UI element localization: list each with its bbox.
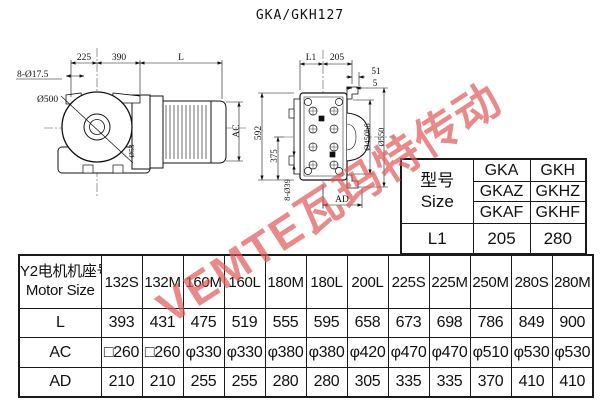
value-cell: 431 — [142, 309, 183, 338]
dim-5: 5 — [373, 78, 378, 88]
dim-L: L — [178, 53, 184, 63]
row-label-L: L — [19, 309, 101, 338]
motor-size-col: 180M — [265, 255, 306, 309]
row-label-AC: AC — [19, 338, 101, 368]
l1-value: 280 — [530, 224, 586, 255]
value-cell: 519 — [224, 309, 265, 338]
dim-225: 225 — [77, 53, 92, 63]
value-cell: 210 — [142, 368, 183, 398]
value-cell: φ330 — [224, 338, 265, 368]
dim-d500: Ø500 — [37, 95, 58, 105]
dim-ac: AC — [232, 124, 242, 137]
value-cell: φ380 — [306, 338, 347, 368]
motor-size-col: 160L — [224, 255, 265, 309]
motor-outline — [150, 96, 226, 168]
motor-size-col: 180L — [306, 255, 347, 309]
dim-d53: Ø53 — [127, 144, 136, 157]
motor-size-col: 225M — [429, 255, 470, 309]
value-cell: 370 — [470, 368, 511, 398]
value-cell: 673 — [388, 309, 429, 338]
dim-ad: AD — [335, 195, 349, 205]
motor-table-header: Y2电机机座号 Motor Size — [19, 255, 101, 309]
value-cell: 255 — [224, 368, 265, 398]
motor-table-header-row: Y2电机机座号 Motor Size 132S 132M 160M 160L 1… — [19, 255, 593, 309]
table-row-AC: AC □260 □260 φ330 φ330 φ380 φ380 φ420 φ4… — [19, 338, 593, 368]
model-cell: GKH — [530, 159, 586, 182]
dim-205: 205 — [330, 53, 345, 63]
value-cell: φ530 — [511, 338, 552, 368]
value-cell: 595 — [306, 309, 347, 338]
motor-size-col: 250M — [470, 255, 511, 309]
motor-size-col: 280S — [511, 255, 552, 309]
motor-size-col: 132M — [142, 255, 183, 309]
value-cell: 305 — [347, 368, 388, 398]
side-top-dimension — [300, 60, 365, 90]
dim-bolt-side: 8-Ø39 — [282, 179, 292, 201]
l1-row-label: L1 — [401, 224, 473, 255]
value-cell: □260 — [101, 338, 142, 368]
motor-size-col: 160M — [183, 255, 224, 309]
table-row-L: L 393 431 475 519 555 595 658 673 698 78… — [19, 309, 593, 338]
size-table: 型号 Size GKA GKH GKAZ GKHZ GKAF GKHF L1 2… — [400, 158, 587, 255]
value-cell: □260 — [142, 338, 183, 368]
model-cell: GKAZ — [473, 182, 530, 202]
value-cell: φ380 — [265, 338, 306, 368]
value-cell: 410 — [511, 368, 552, 398]
model-cell: GKHF — [530, 202, 586, 224]
size-table-header-en: Size — [402, 192, 473, 212]
model-cell: GKA — [473, 159, 530, 182]
value-cell: 255 — [183, 368, 224, 398]
motor-size-col: 132S — [101, 255, 142, 309]
motor-header-cn: Y2电机机座号 — [20, 263, 101, 282]
size-table-header: 型号 Size — [401, 159, 473, 224]
value-cell: 280 — [265, 368, 306, 398]
value-cell: 698 — [429, 309, 470, 338]
dim-390: 390 — [112, 53, 127, 63]
value-cell: 849 — [511, 309, 552, 338]
dim-L1: L1 — [306, 53, 317, 63]
dim-375: 375 — [269, 149, 279, 163]
motor-header-en: Motor Size — [20, 282, 101, 301]
dim-592: 592 — [254, 126, 264, 141]
value-cell: 335 — [429, 368, 470, 398]
value-cell: φ530 — [552, 338, 593, 368]
l1-value: 205 — [473, 224, 530, 255]
value-cell: φ470 — [429, 338, 470, 368]
value-cell: 786 — [470, 309, 511, 338]
value-cell: φ510 — [470, 338, 511, 368]
value-cell: 280 — [306, 368, 347, 398]
model-cell: GKHZ — [530, 182, 586, 202]
dim-bolt-front: 8-Ø17.5 — [17, 70, 49, 80]
front-view — [16, 48, 246, 196]
motor-size-col: 280M — [552, 255, 593, 309]
motor-size-col: 225S — [388, 255, 429, 309]
value-cell: 658 — [347, 309, 388, 338]
model-cell: GKAF — [473, 202, 530, 224]
dim-d550: Ø550 — [376, 128, 386, 147]
value-cell: 410 — [552, 368, 593, 398]
motor-size-col: 200L — [347, 255, 388, 309]
value-cell: 900 — [552, 309, 593, 338]
value-cell: 335 — [388, 368, 429, 398]
dim-51: 51 — [372, 66, 381, 76]
value-cell: 210 — [101, 368, 142, 398]
value-cell: φ420 — [347, 338, 388, 368]
value-cell: φ470 — [388, 338, 429, 368]
drawing-sheet: GKA/GKH127 — [0, 0, 600, 411]
row-label-AD: AD — [19, 368, 101, 398]
value-cell: 555 — [265, 309, 306, 338]
size-table-header-cn: 型号 — [402, 171, 473, 191]
motor-table: Y2电机机座号 Motor Size 132S 132M 160M 160L 1… — [18, 254, 594, 398]
value-cell: φ330 — [183, 338, 224, 368]
value-cell: 475 — [183, 309, 224, 338]
table-row-AD: AD 210 210 255 255 280 280 305 335 335 3… — [19, 368, 593, 398]
value-cell: 393 — [101, 309, 142, 338]
dim-d450h6: Ø450h6 — [362, 123, 372, 150]
